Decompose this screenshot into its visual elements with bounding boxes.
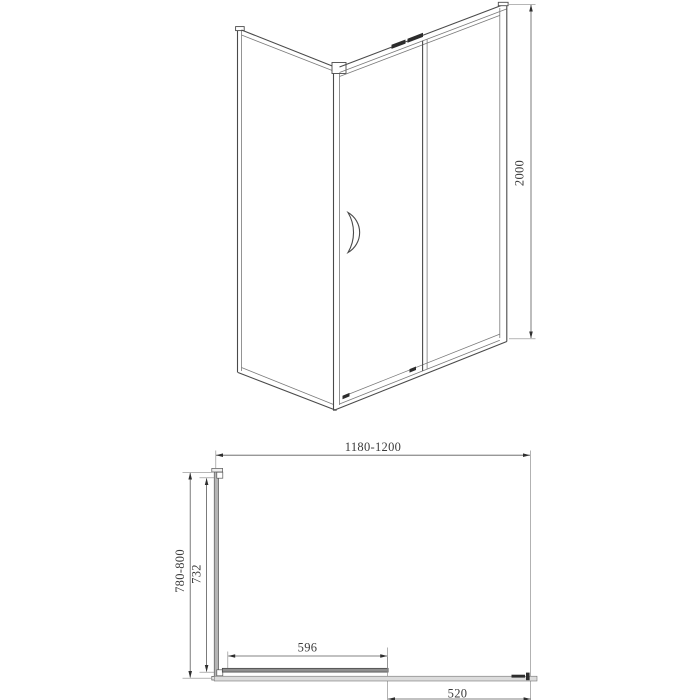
overall-width-dimension: 1180-1200 bbox=[216, 440, 531, 700]
right-post bbox=[498, 2, 508, 341]
plan-sliding-door bbox=[222, 657, 388, 672]
shower-enclosure-drawing: 2000 1180-1200 780-800 bbox=[0, 0, 700, 700]
corner-post bbox=[332, 63, 346, 411]
height-dimension: 2000 bbox=[509, 4, 536, 339]
track-end-bracket-icon bbox=[526, 673, 530, 681]
wall-bracket-icon bbox=[212, 468, 223, 472]
glass-width-label: 732 bbox=[190, 564, 204, 584]
wall-bracket-icon bbox=[217, 472, 223, 478]
plan-view-drawing: 1180-1200 780-800 732 bbox=[173, 440, 537, 700]
door-width-label: 596 bbox=[298, 641, 318, 655]
wall-bracket-icon bbox=[217, 670, 223, 676]
right-post-cap bbox=[498, 2, 508, 5]
technical-drawing-page: 2000 1180-1200 780-800 bbox=[0, 0, 700, 700]
plan-bottom-track bbox=[214, 673, 537, 681]
door-handle-icon bbox=[348, 213, 360, 253]
door-guide-icon bbox=[343, 393, 350, 399]
bottom-rail bbox=[334, 334, 507, 410]
entry-width-label: 520 bbox=[448, 687, 468, 700]
door-divider bbox=[423, 39, 428, 371]
plan-side-panel bbox=[212, 468, 223, 680]
track-end-bracket-icon bbox=[512, 675, 526, 678]
corner-post-cap bbox=[332, 63, 346, 74]
roller-bracket-icon bbox=[392, 40, 406, 49]
front-view-drawing: 2000 bbox=[236, 2, 536, 410]
overall-depth-label: 780-800 bbox=[173, 549, 187, 593]
door-guide-icon bbox=[410, 367, 417, 373]
entry-width-dimension: 520 bbox=[388, 687, 531, 700]
height-dimension-label: 2000 bbox=[513, 160, 527, 186]
side-panel bbox=[236, 27, 337, 411]
glass-width-dimension: 732 bbox=[190, 478, 214, 672]
overall-width-label: 1180-1200 bbox=[345, 440, 401, 454]
